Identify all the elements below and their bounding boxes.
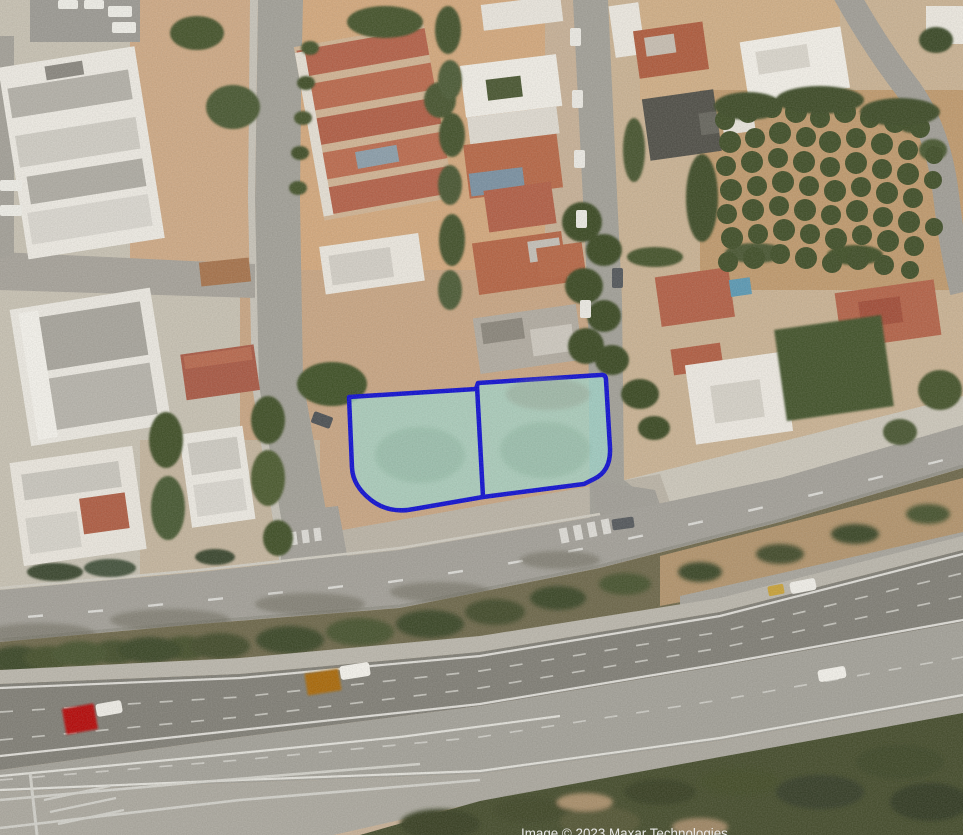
svg-text:Image © 2023 Maxar Technologie: Image © 2023 Maxar Technologies [521,826,728,835]
